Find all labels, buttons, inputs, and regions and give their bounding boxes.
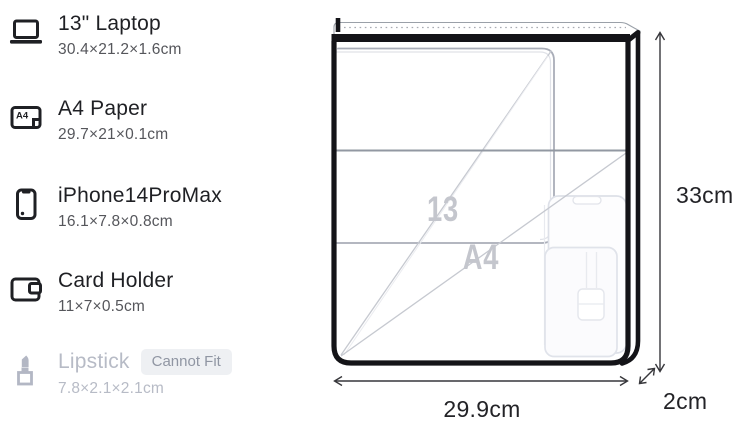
depth-dimension-label: 2cm — [663, 388, 707, 414]
ghost-card-holder — [545, 248, 617, 357]
bag-size-diagram: 13 A4 33cm 29.9cm 2cm — [0, 0, 750, 423]
height-dimension-label: 33cm — [676, 182, 733, 208]
width-dimension-label: 29.9cm — [443, 396, 520, 422]
ghost-paper-label: A4 — [463, 238, 499, 277]
ghost-laptop-label: 13 — [427, 190, 459, 229]
